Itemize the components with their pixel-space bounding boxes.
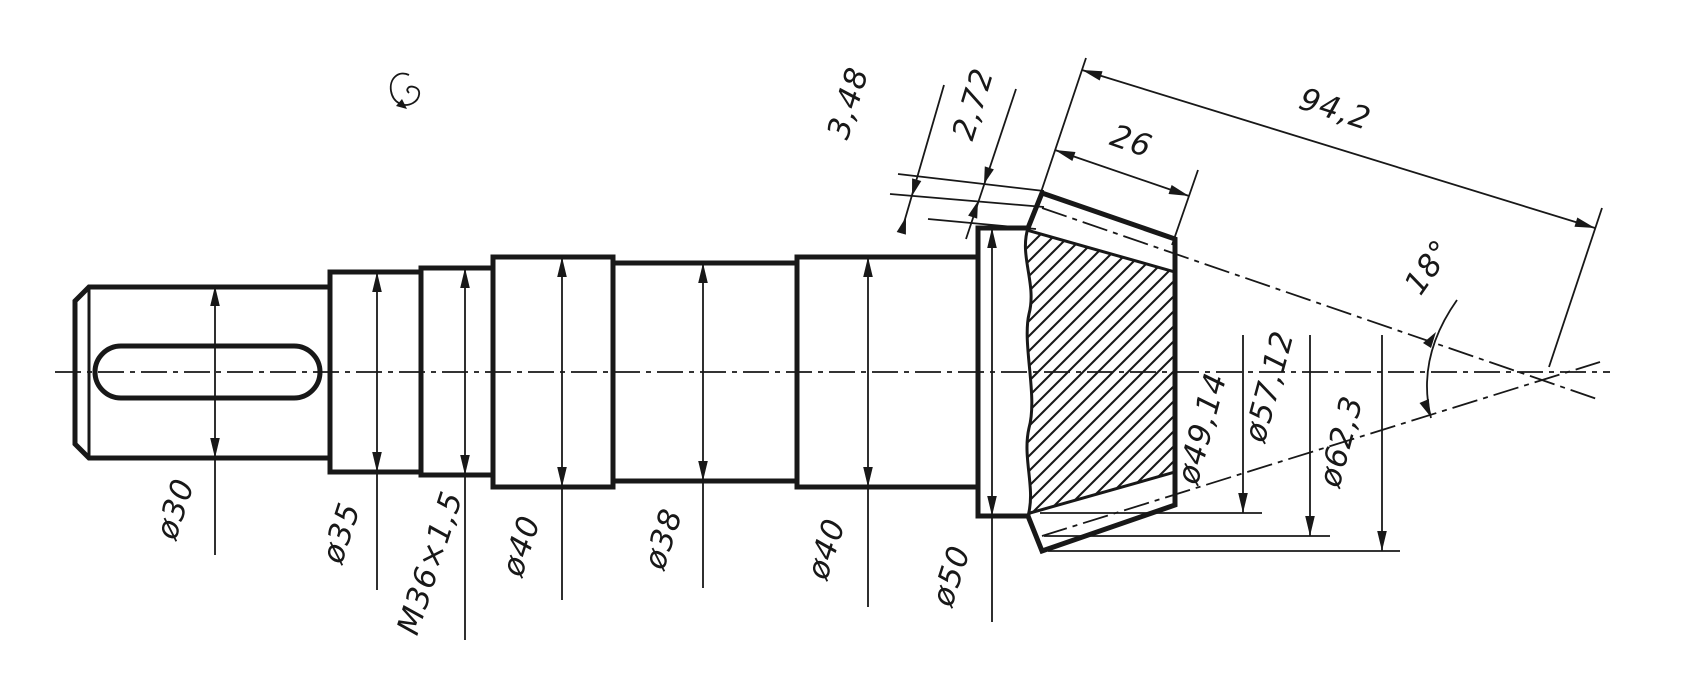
dim-label-phi50: ø50: [925, 541, 979, 611]
ext-line-back-face: [1172, 170, 1198, 245]
dim-label-phi40a: ø40: [495, 511, 549, 581]
dim-label-18deg: 18°: [1397, 233, 1460, 301]
dim-label-phi4914: ø49,14: [1170, 369, 1234, 489]
dim-phi40b: ø40: [800, 257, 868, 607]
dim-272: 2,72: [946, 64, 1016, 239]
ext-line-pitch-front: [890, 194, 1044, 207]
tooth-height-dimensions: 3,48 2,72: [821, 63, 1044, 239]
ext-line-apex: [1549, 208, 1602, 367]
artifact-curl: [391, 74, 419, 105]
angle-dimension: 18°: [1397, 233, 1460, 418]
dim-phi40a: ø40: [495, 257, 562, 600]
dim-phi4914: ø49,14: [1170, 335, 1243, 513]
dim-label-phi38: ø38: [637, 504, 691, 574]
artifact-arrow-tip: [396, 99, 407, 109]
dim-phi35: ø35: [315, 272, 377, 590]
technical-drawing: ø30 ø35 M36×1,5 ø40 ø38 ø40: [0, 0, 1689, 687]
drawing-sheet: ø30 ø35 M36×1,5 ø40 ø38 ø40: [0, 0, 1689, 687]
dim-label-phi40b: ø40: [800, 514, 854, 584]
dim-label-942: 94,2: [1295, 81, 1376, 138]
dim-942: 94,2: [1082, 70, 1595, 228]
dim-26: 26: [1055, 118, 1189, 196]
shaft-dimensions: ø30 ø35 M36×1,5 ø40 ø38 ø40: [149, 228, 992, 640]
dim-phi38: ø38: [637, 263, 703, 588]
angle-arc: [1427, 300, 1457, 418]
dim-label-m36x15: M36×1,5: [390, 487, 470, 639]
dim-phi623: ø62,3: [1312, 335, 1382, 551]
dim-label-phi5712: ø57,12: [1237, 327, 1301, 447]
dim-label-phi30: ø30: [149, 474, 203, 544]
section-hatching: [1027, 231, 1175, 513]
dim-m36x15: M36×1,5: [390, 268, 470, 640]
dim-label-phi623: ø62,3: [1312, 392, 1371, 492]
dim-phi5712: ø57,12: [1237, 327, 1310, 536]
dim-label-348: 3,48: [821, 63, 877, 143]
bevel-gear-section: [1025, 193, 1175, 551]
dim-348: 3,48: [821, 63, 944, 235]
dim-label-26: 26: [1106, 118, 1157, 166]
dim-label-phi35: ø35: [315, 498, 369, 568]
dim-label-272: 2,72: [946, 64, 1002, 144]
dim-phi30: ø30: [149, 286, 215, 555]
dim-phi50: ø50: [925, 228, 992, 622]
artifact-mark: [391, 74, 419, 109]
